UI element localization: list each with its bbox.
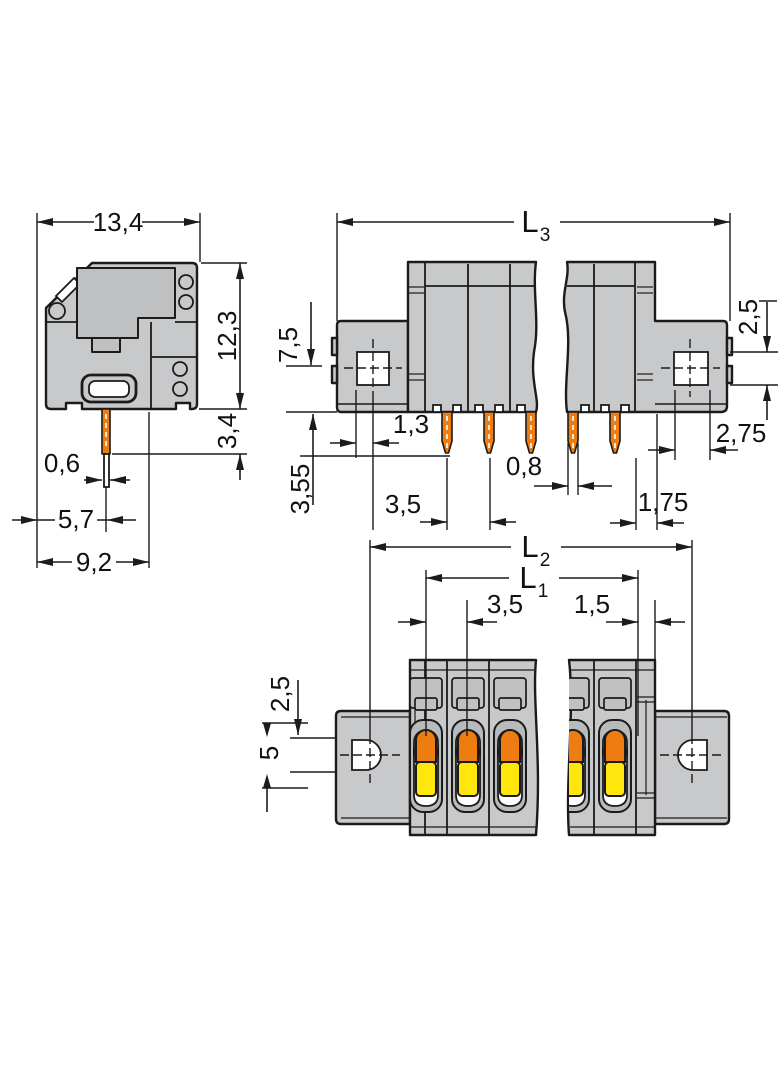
dim-top-end-offset: 1,5 bbox=[574, 589, 610, 619]
dim-front-pin-width: 0,8 bbox=[506, 451, 542, 481]
side-view: 13,4 12,3 3,4 0,6 5,7 9,2 bbox=[12, 207, 247, 577]
dim-top-outer-sub: 2 bbox=[540, 550, 551, 571]
poles-left bbox=[410, 678, 526, 812]
dim-front-pin-protrusion: 3,55 bbox=[285, 464, 315, 515]
technical-drawing: 13,4 12,3 3,4 0,6 5,7 9,2 bbox=[0, 0, 784, 1066]
dim-top-outer: L bbox=[521, 529, 538, 564]
dim-front-hole-offset: 1,3 bbox=[393, 409, 429, 439]
dim-side-pin-offset: 5,7 bbox=[58, 504, 94, 534]
dim-front-length-sub: 3 bbox=[540, 225, 551, 246]
front-view: L 3 7,5 3,55 1,3 3,5 0,8 1,75 2,75 2,5 bbox=[273, 204, 778, 530]
dim-front-pitch: 3,5 bbox=[385, 489, 421, 519]
dim-top-edge: 2,5 bbox=[265, 676, 295, 712]
dim-top-pitch: 3,5 bbox=[487, 589, 523, 619]
top-view: L 2 L 1 3,5 1,5 2,5 5 bbox=[254, 529, 729, 835]
dim-front-hole-width: 2,75 bbox=[716, 418, 767, 448]
dim-front-length: L bbox=[521, 204, 538, 239]
dim-side-height: 12,3 bbox=[212, 311, 242, 362]
dim-front-end-offset: 1,75 bbox=[638, 487, 689, 517]
dim-top-hole-span: 5 bbox=[254, 746, 284, 760]
dim-top-inner-sub: 1 bbox=[538, 581, 549, 602]
dim-front-hole-drop: 7,5 bbox=[273, 327, 303, 363]
dim-side-pin-length: 3,4 bbox=[212, 413, 242, 449]
dim-side-base-width: 9,2 bbox=[76, 547, 112, 577]
drawing-page: 13,4 12,3 3,4 0,6 5,7 9,2 bbox=[0, 0, 784, 1066]
dim-side-width: 13,4 bbox=[93, 207, 144, 237]
dim-front-hole-height: 2,5 bbox=[733, 299, 763, 335]
dim-side-pin-width: 0,6 bbox=[44, 448, 80, 478]
